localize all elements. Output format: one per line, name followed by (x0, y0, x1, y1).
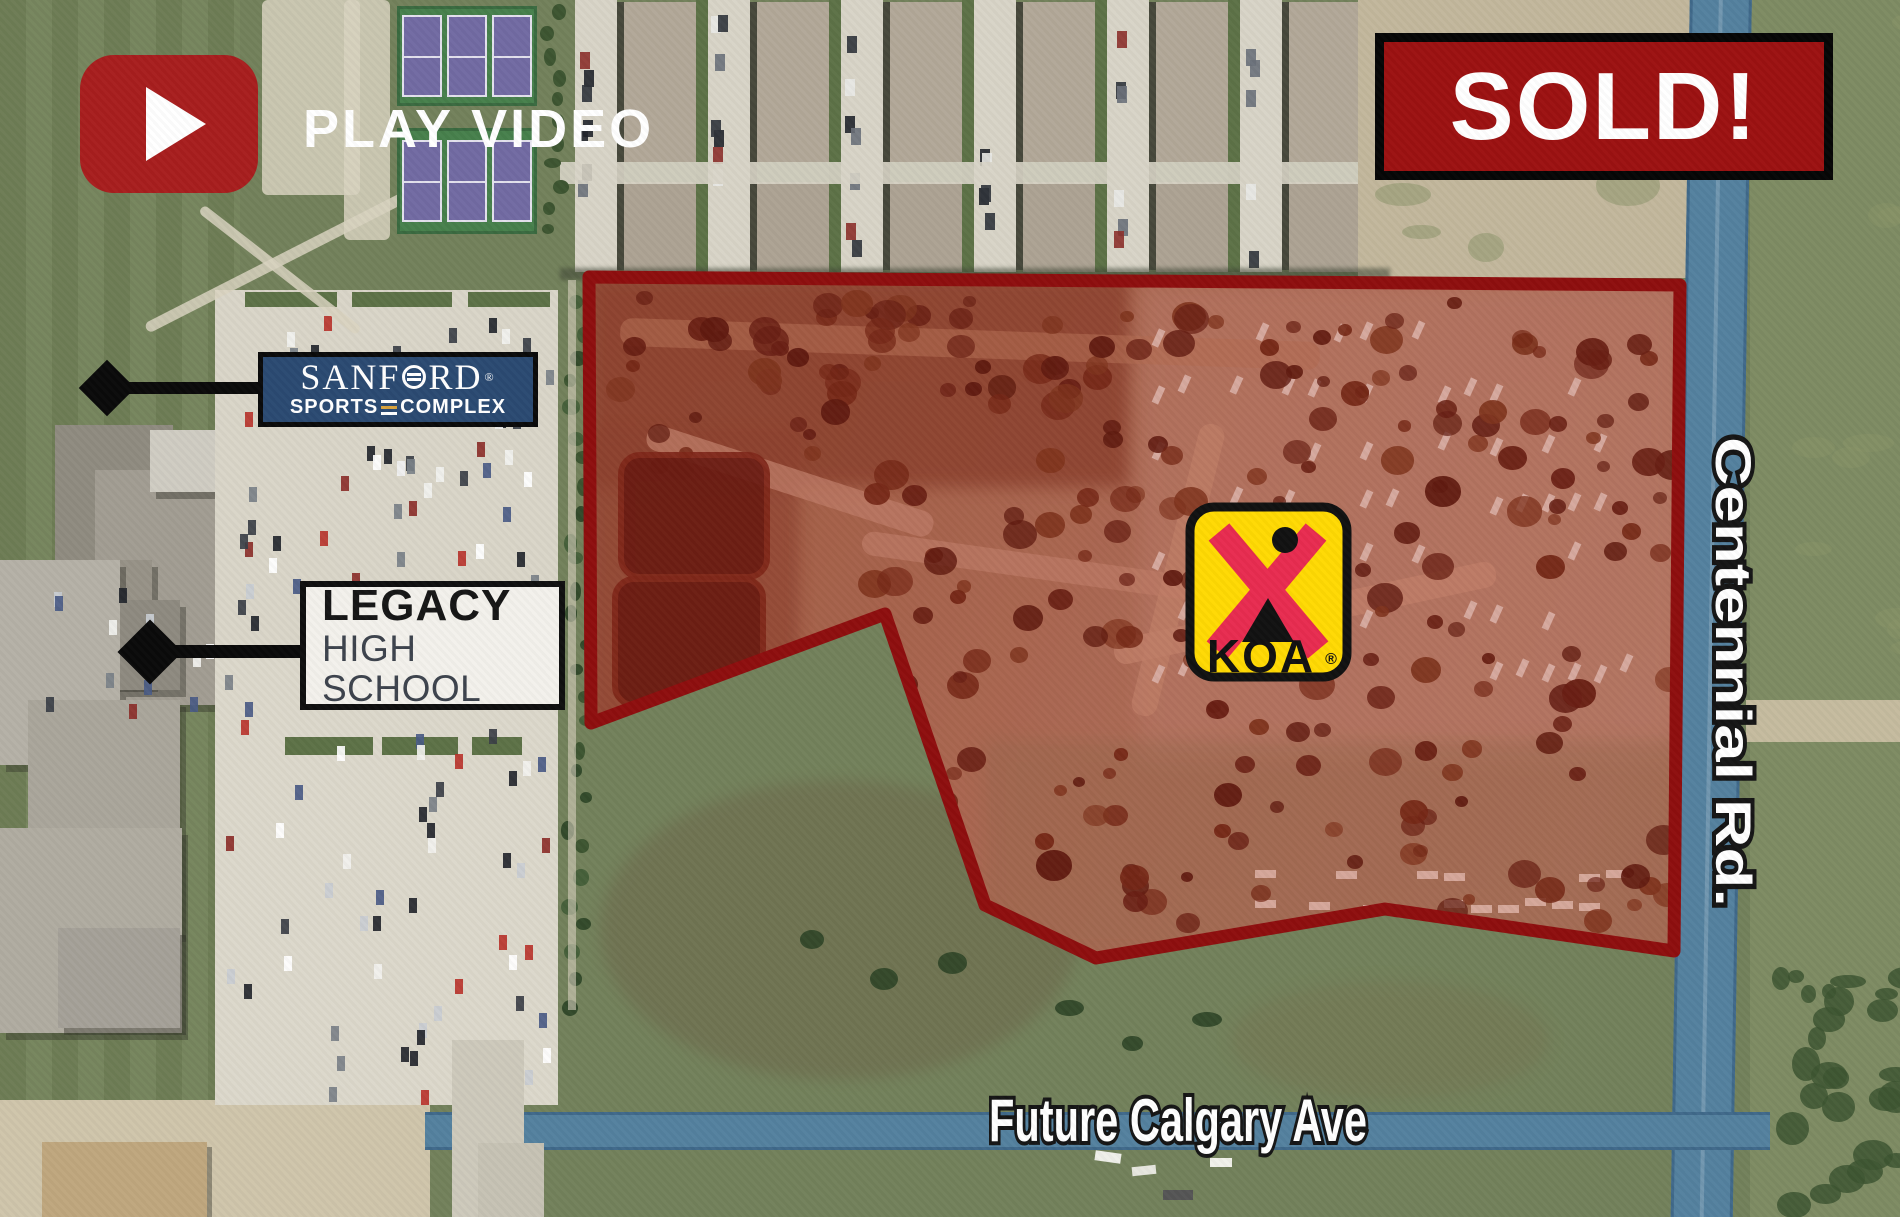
decor (577, 478, 589, 497)
decor (750, 2, 757, 270)
decor (374, 964, 382, 979)
decor (544, 48, 556, 66)
decor (1114, 190, 1124, 207)
decor (1795, 542, 1832, 556)
decor (851, 128, 861, 145)
decor (373, 916, 381, 931)
decor (1132, 1165, 1157, 1176)
decor (434, 1006, 442, 1021)
decor (436, 782, 444, 797)
koa-reg: ® (1325, 651, 1337, 668)
decor (248, 520, 256, 535)
decor (227, 969, 235, 984)
decor (468, 292, 550, 307)
decor (241, 720, 249, 735)
decor (109, 620, 117, 635)
decor (962, 0, 974, 272)
decor (580, 792, 593, 803)
tennis-court (447, 15, 487, 97)
decor (1117, 31, 1127, 48)
decor (1023, 182, 1095, 272)
decor (852, 240, 862, 257)
decor (800, 930, 824, 949)
decor (1289, 2, 1361, 162)
dirt-road-east (1746, 700, 1900, 742)
decor (890, 182, 962, 272)
decor (458, 551, 466, 566)
decor (845, 79, 855, 96)
decor (757, 182, 829, 272)
decor (757, 2, 829, 162)
decor (883, 2, 890, 270)
decor (244, 984, 252, 999)
decor (543, 1048, 551, 1063)
decor (476, 544, 484, 559)
decor (1094, 1150, 1121, 1164)
decor (715, 54, 725, 71)
decor (246, 584, 254, 599)
decor (846, 223, 856, 240)
decor (190, 697, 198, 712)
decor (1869, 1087, 1900, 1111)
decor (225, 675, 233, 690)
decor (1777, 1192, 1811, 1217)
decor (251, 616, 259, 631)
decor (870, 968, 898, 990)
decor (436, 467, 444, 482)
decor (295, 785, 303, 800)
decor (505, 450, 513, 465)
decor (1375, 183, 1430, 206)
decor (577, 327, 590, 343)
tennis-courts-north (397, 6, 537, 106)
decor (1801, 985, 1816, 1003)
decor (552, 4, 566, 20)
decor (539, 1013, 547, 1028)
decor (1117, 86, 1127, 103)
legacy-line2: HIGH SCHOOL (322, 629, 559, 709)
decor (1228, 0, 1240, 272)
decor (352, 292, 452, 307)
decor (245, 412, 253, 427)
decor (287, 332, 295, 347)
decor (1107, 0, 1149, 272)
decor (331, 1026, 339, 1041)
decor (1830, 975, 1865, 988)
decor (1813, 1007, 1845, 1031)
decor (718, 15, 728, 32)
play-video-button[interactable] (80, 55, 258, 193)
decor (1250, 60, 1260, 77)
decor (455, 754, 463, 769)
decor (509, 771, 517, 786)
decor (343, 854, 351, 869)
decor (424, 483, 432, 498)
decor (376, 890, 384, 905)
decor (276, 823, 284, 838)
decor (419, 807, 427, 822)
decor (509, 955, 517, 970)
decor (281, 919, 289, 934)
decor (575, 451, 591, 464)
decor (553, 180, 569, 194)
decor (499, 935, 507, 950)
decor (517, 863, 525, 878)
decor (324, 316, 332, 331)
decor (525, 945, 533, 960)
decor (410, 1051, 418, 1066)
sanford-line1: SANFRD® (300, 360, 495, 394)
decor (428, 838, 436, 853)
decor (409, 501, 417, 516)
decor (240, 534, 248, 549)
decor (1246, 183, 1256, 200)
decor (384, 449, 392, 464)
decor (1246, 90, 1256, 107)
sanford-e-icon (381, 400, 397, 415)
decor (489, 729, 497, 744)
decor (477, 442, 485, 457)
decor (542, 838, 550, 853)
decor (1163, 1190, 1193, 1200)
decor (397, 461, 405, 476)
decor (553, 70, 566, 87)
decor (543, 202, 555, 215)
decor (575, 839, 589, 852)
decor (568, 280, 576, 1010)
sanford-line2: SPORTSCOMPLEX (290, 396, 506, 419)
decor (503, 853, 511, 868)
legacy-high-school-label: LEGACY HIGH SCHOOL (300, 581, 565, 710)
decor (245, 702, 253, 717)
decor (472, 737, 522, 755)
legacy-line1: LEGACY (322, 583, 559, 629)
decor (269, 558, 277, 573)
decor (1122, 1036, 1143, 1051)
decor (421, 1090, 429, 1105)
decor (847, 36, 857, 53)
decor (337, 746, 345, 761)
decor (455, 979, 463, 994)
tennis-court (402, 15, 442, 97)
decor (1055, 1000, 1084, 1016)
decor (397, 552, 405, 567)
decor (460, 471, 468, 486)
decor (1879, 1067, 1900, 1082)
decor (540, 26, 554, 41)
decor (320, 531, 328, 546)
decor (373, 455, 381, 470)
decor (696, 0, 708, 272)
koa-logo: KOA ® (1185, 502, 1352, 682)
decor (284, 956, 292, 971)
decor (226, 836, 234, 851)
decor (325, 883, 333, 898)
decor (1282, 2, 1289, 270)
sanford-o-logo-icon (402, 365, 426, 389)
decor (1776, 1112, 1809, 1145)
decor (1843, 434, 1894, 452)
decor (58, 928, 180, 1028)
decor (449, 328, 457, 343)
decor (503, 507, 511, 522)
decor (502, 329, 510, 344)
decor (427, 823, 435, 838)
decor (106, 673, 114, 688)
decor (546, 370, 554, 385)
decor (337, 1056, 345, 1071)
decor (273, 536, 281, 551)
decor (517, 552, 525, 567)
decor (1800, 1083, 1828, 1109)
access-road (478, 1143, 544, 1217)
decor (42, 1142, 207, 1217)
sanford-sports-complex-label: SANFRD® SPORTSCOMPLEX (258, 352, 538, 427)
decor (1114, 231, 1124, 248)
aerial-map: Centennial Rd. Future Calgary Ave SANFRD… (0, 0, 1900, 1217)
decor (341, 476, 349, 491)
decor (409, 898, 417, 913)
decor (238, 600, 246, 615)
decor (483, 463, 491, 478)
decor (1016, 2, 1023, 270)
decor (974, 0, 1016, 272)
tennis-court (492, 15, 532, 97)
decor (1792, 437, 1835, 458)
decor (576, 918, 590, 930)
decor (1095, 0, 1107, 272)
decor (285, 737, 373, 755)
sold-banner: SOLD! (1375, 33, 1833, 180)
decor (46, 697, 54, 712)
decor (542, 224, 554, 234)
decor (394, 504, 402, 519)
decor (1156, 182, 1228, 272)
decor (1810, 1184, 1840, 1203)
decor (1149, 2, 1156, 270)
decor (575, 506, 587, 522)
decor (624, 182, 696, 272)
decor (1023, 2, 1095, 162)
decor (401, 1047, 409, 1062)
decor (560, 162, 1360, 184)
decor (407, 459, 415, 474)
decor (489, 318, 497, 333)
decor (1156, 2, 1228, 162)
decor (1402, 225, 1440, 239)
decor (429, 797, 437, 812)
decor (1468, 233, 1504, 262)
decor (890, 2, 962, 162)
decor (129, 704, 137, 719)
decor (711, 120, 721, 137)
decor (578, 691, 591, 703)
play-video-label: PLAY VIDEO (303, 98, 654, 160)
decor (417, 1030, 425, 1045)
decor (981, 185, 991, 202)
decor (524, 472, 532, 487)
decor (249, 487, 257, 502)
decor (1192, 1012, 1222, 1027)
decor (55, 596, 63, 611)
decor (525, 1070, 533, 1085)
decor (538, 757, 546, 772)
decor (329, 1087, 337, 1102)
decor (1788, 970, 1804, 983)
play-icon (146, 87, 206, 161)
sold-text: SOLD! (1450, 52, 1759, 162)
decor (150, 430, 222, 492)
decor (1289, 182, 1361, 272)
koa-text: KOA (1207, 630, 1315, 682)
decor (360, 916, 368, 931)
decor (580, 52, 590, 69)
decor (1249, 251, 1259, 268)
decor (938, 952, 967, 974)
future-calgary-road (425, 1112, 1770, 1150)
decor (985, 213, 995, 230)
decor (417, 745, 425, 760)
decor (1240, 0, 1282, 272)
decor (523, 761, 531, 776)
decor (1230, 980, 1550, 1100)
decor (829, 0, 841, 272)
decor (119, 588, 127, 603)
decor (1210, 1158, 1232, 1167)
decor (516, 996, 524, 1011)
decor (1823, 1067, 1849, 1088)
